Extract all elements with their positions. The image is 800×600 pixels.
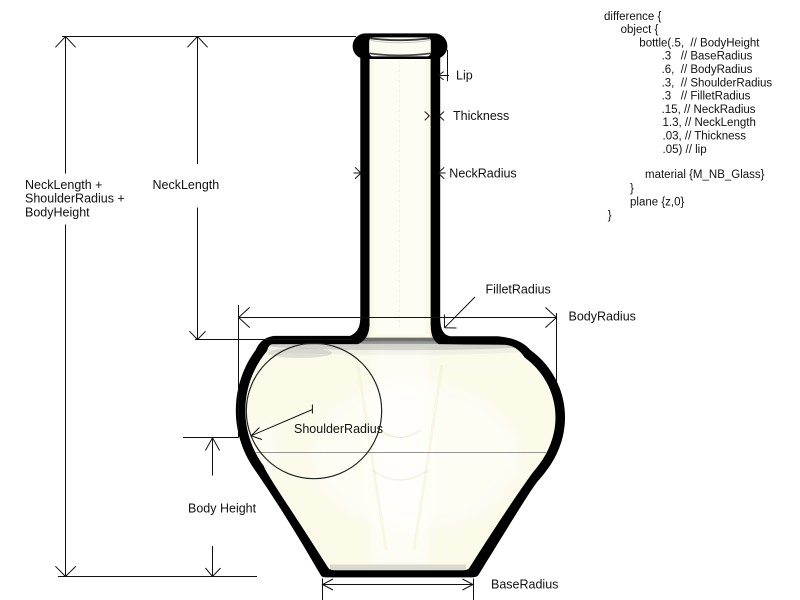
svg-text:.6, // BodyRadius: .6, // BodyRadius [662,64,753,76]
svg-text:}: } [608,210,612,222]
svg-text:BodyHeight: BodyHeight [25,205,90,219]
svg-text:.3, // ShoulderRadius: .3, // ShoulderRadius [662,77,773,89]
svg-text:object {: object { [621,24,659,36]
svg-text:.3 // BaseRadius: .3 // BaseRadius [662,51,753,63]
svg-text:.15, // NeckRadius: .15, // NeckRadius [662,104,756,116]
svg-text:Body Height: Body Height [188,501,257,515]
svg-text:.3 // FilletRadius: .3 // FilletRadius [662,91,751,103]
svg-text:FilletRadius: FilletRadius [486,283,551,297]
svg-text:BaseRadius: BaseRadius [491,578,558,592]
svg-text:ShoulderRadius +: ShoulderRadius + [25,192,125,206]
svg-text:Thickness: Thickness [453,109,509,123]
svg-text:bottle(.5, // BodyHeight: bottle(.5, // BodyHeight [639,37,760,49]
svg-text:NeckLength +: NeckLength + [25,178,102,192]
svg-text:.05) // lip: .05) // lip [663,144,707,156]
svg-text:ShoulderRadius: ShoulderRadius [294,422,383,436]
svg-text:NeckRadius: NeckRadius [449,166,516,180]
svg-text:}: } [630,183,634,195]
svg-text:.03, // Thickness: .03, // Thickness [663,131,747,143]
svg-text:material {M_NB_Glass}: material {M_NB_Glass} [645,169,765,181]
svg-text:Lip: Lip [456,69,473,83]
svg-text:plane {z,0}: plane {z,0} [630,196,685,208]
svg-text:BodyRadius: BodyRadius [569,310,636,324]
svg-text:NeckLength: NeckLength [153,178,220,192]
svg-text:1.3, // NeckLength: 1.3, // NeckLength [663,117,756,129]
svg-text:difference {: difference { [604,11,661,23]
